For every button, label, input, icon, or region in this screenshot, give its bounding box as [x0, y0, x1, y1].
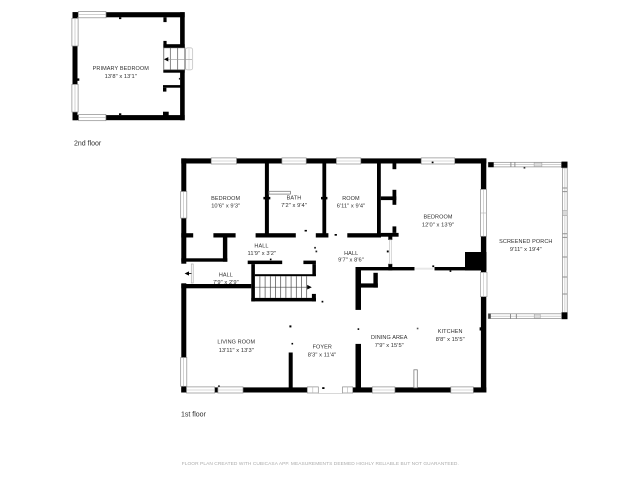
svg-text:ROOM: ROOM — [342, 196, 360, 202]
svg-text:9'7" x 8'6": 9'7" x 8'6" — [338, 258, 364, 264]
svg-text:10'6" x 9'3": 10'6" x 9'3" — [211, 204, 240, 210]
svg-text:13'11" x 13'3": 13'11" x 13'3" — [219, 348, 254, 354]
svg-text:8'3" x 11'4": 8'3" x 11'4" — [308, 353, 337, 359]
svg-text:BATH: BATH — [287, 196, 302, 202]
svg-text:9'11" x 19'4": 9'11" x 19'4" — [510, 247, 542, 253]
svg-text:7'9" x 2'9": 7'9" x 2'9" — [213, 280, 239, 286]
svg-text:2nd floor: 2nd floor — [74, 141, 102, 148]
svg-text:HALL: HALL — [344, 251, 358, 257]
svg-text:FLOOR PLAN CREATED WITH CUBICA: FLOOR PLAN CREATED WITH CUBICASA APP. ME… — [182, 461, 459, 467]
svg-text:BEDROOM: BEDROOM — [423, 215, 452, 221]
svg-text:HALL: HALL — [254, 244, 268, 250]
svg-text:KITCHEN: KITCHEN — [438, 329, 463, 335]
svg-text:13'8" x 13'1": 13'8" x 13'1" — [105, 74, 137, 80]
svg-text:11'9" x 3'2": 11'9" x 3'2" — [248, 251, 277, 257]
svg-text:HALL: HALL — [219, 273, 233, 279]
svg-text:7'2" x 9'4": 7'2" x 9'4" — [281, 203, 307, 209]
svg-text:7'9" x 15'5": 7'9" x 15'5" — [375, 343, 404, 349]
svg-text:1st floor: 1st floor — [181, 411, 207, 418]
svg-text:6'11" x 9'4": 6'11" x 9'4" — [337, 204, 366, 210]
svg-text:LIVING ROOM: LIVING ROOM — [217, 340, 255, 346]
svg-text:PRIMARY BEDROOM: PRIMARY BEDROOM — [93, 66, 150, 72]
svg-text:FOYER: FOYER — [313, 345, 332, 351]
svg-text:8'8" x 15'5": 8'8" x 15'5" — [436, 337, 465, 343]
svg-text:12'0" x 13'9": 12'0" x 13'9" — [422, 222, 454, 228]
svg-text:SCREENED PORCH: SCREENED PORCH — [499, 239, 552, 245]
svg-text:BEDROOM: BEDROOM — [211, 196, 240, 202]
svg-text:DINING AREA: DINING AREA — [371, 335, 408, 341]
